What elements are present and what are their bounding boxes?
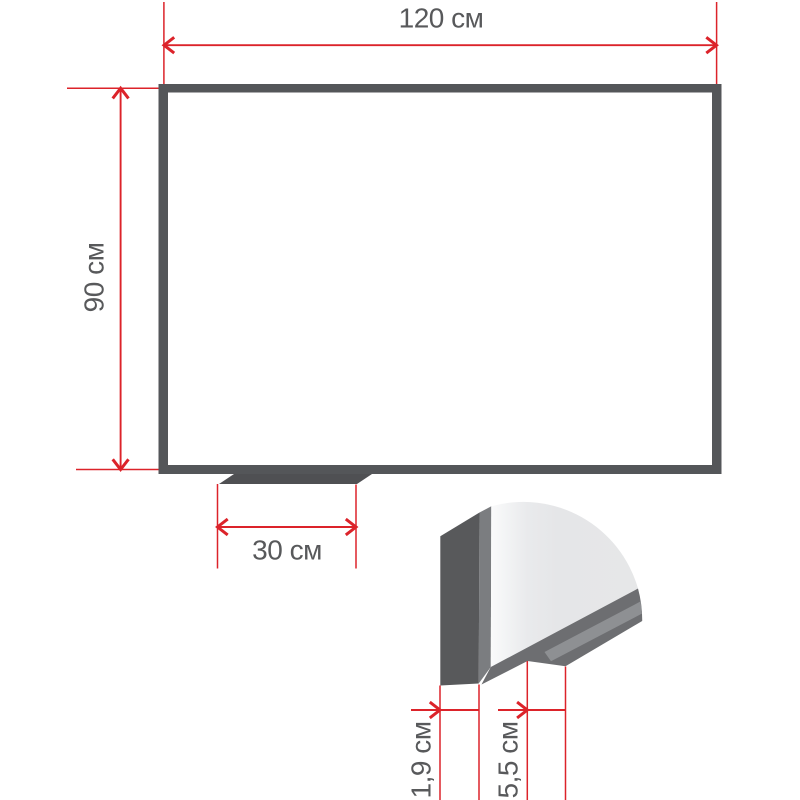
- svg-text:120 см: 120 см: [399, 3, 484, 34]
- svg-text:30 см: 30 см: [252, 535, 322, 566]
- svg-text:1,9 см: 1,9 см: [406, 722, 437, 799]
- svg-text:90 см: 90 см: [79, 243, 110, 313]
- svg-text:5,5 см: 5,5 см: [493, 722, 524, 799]
